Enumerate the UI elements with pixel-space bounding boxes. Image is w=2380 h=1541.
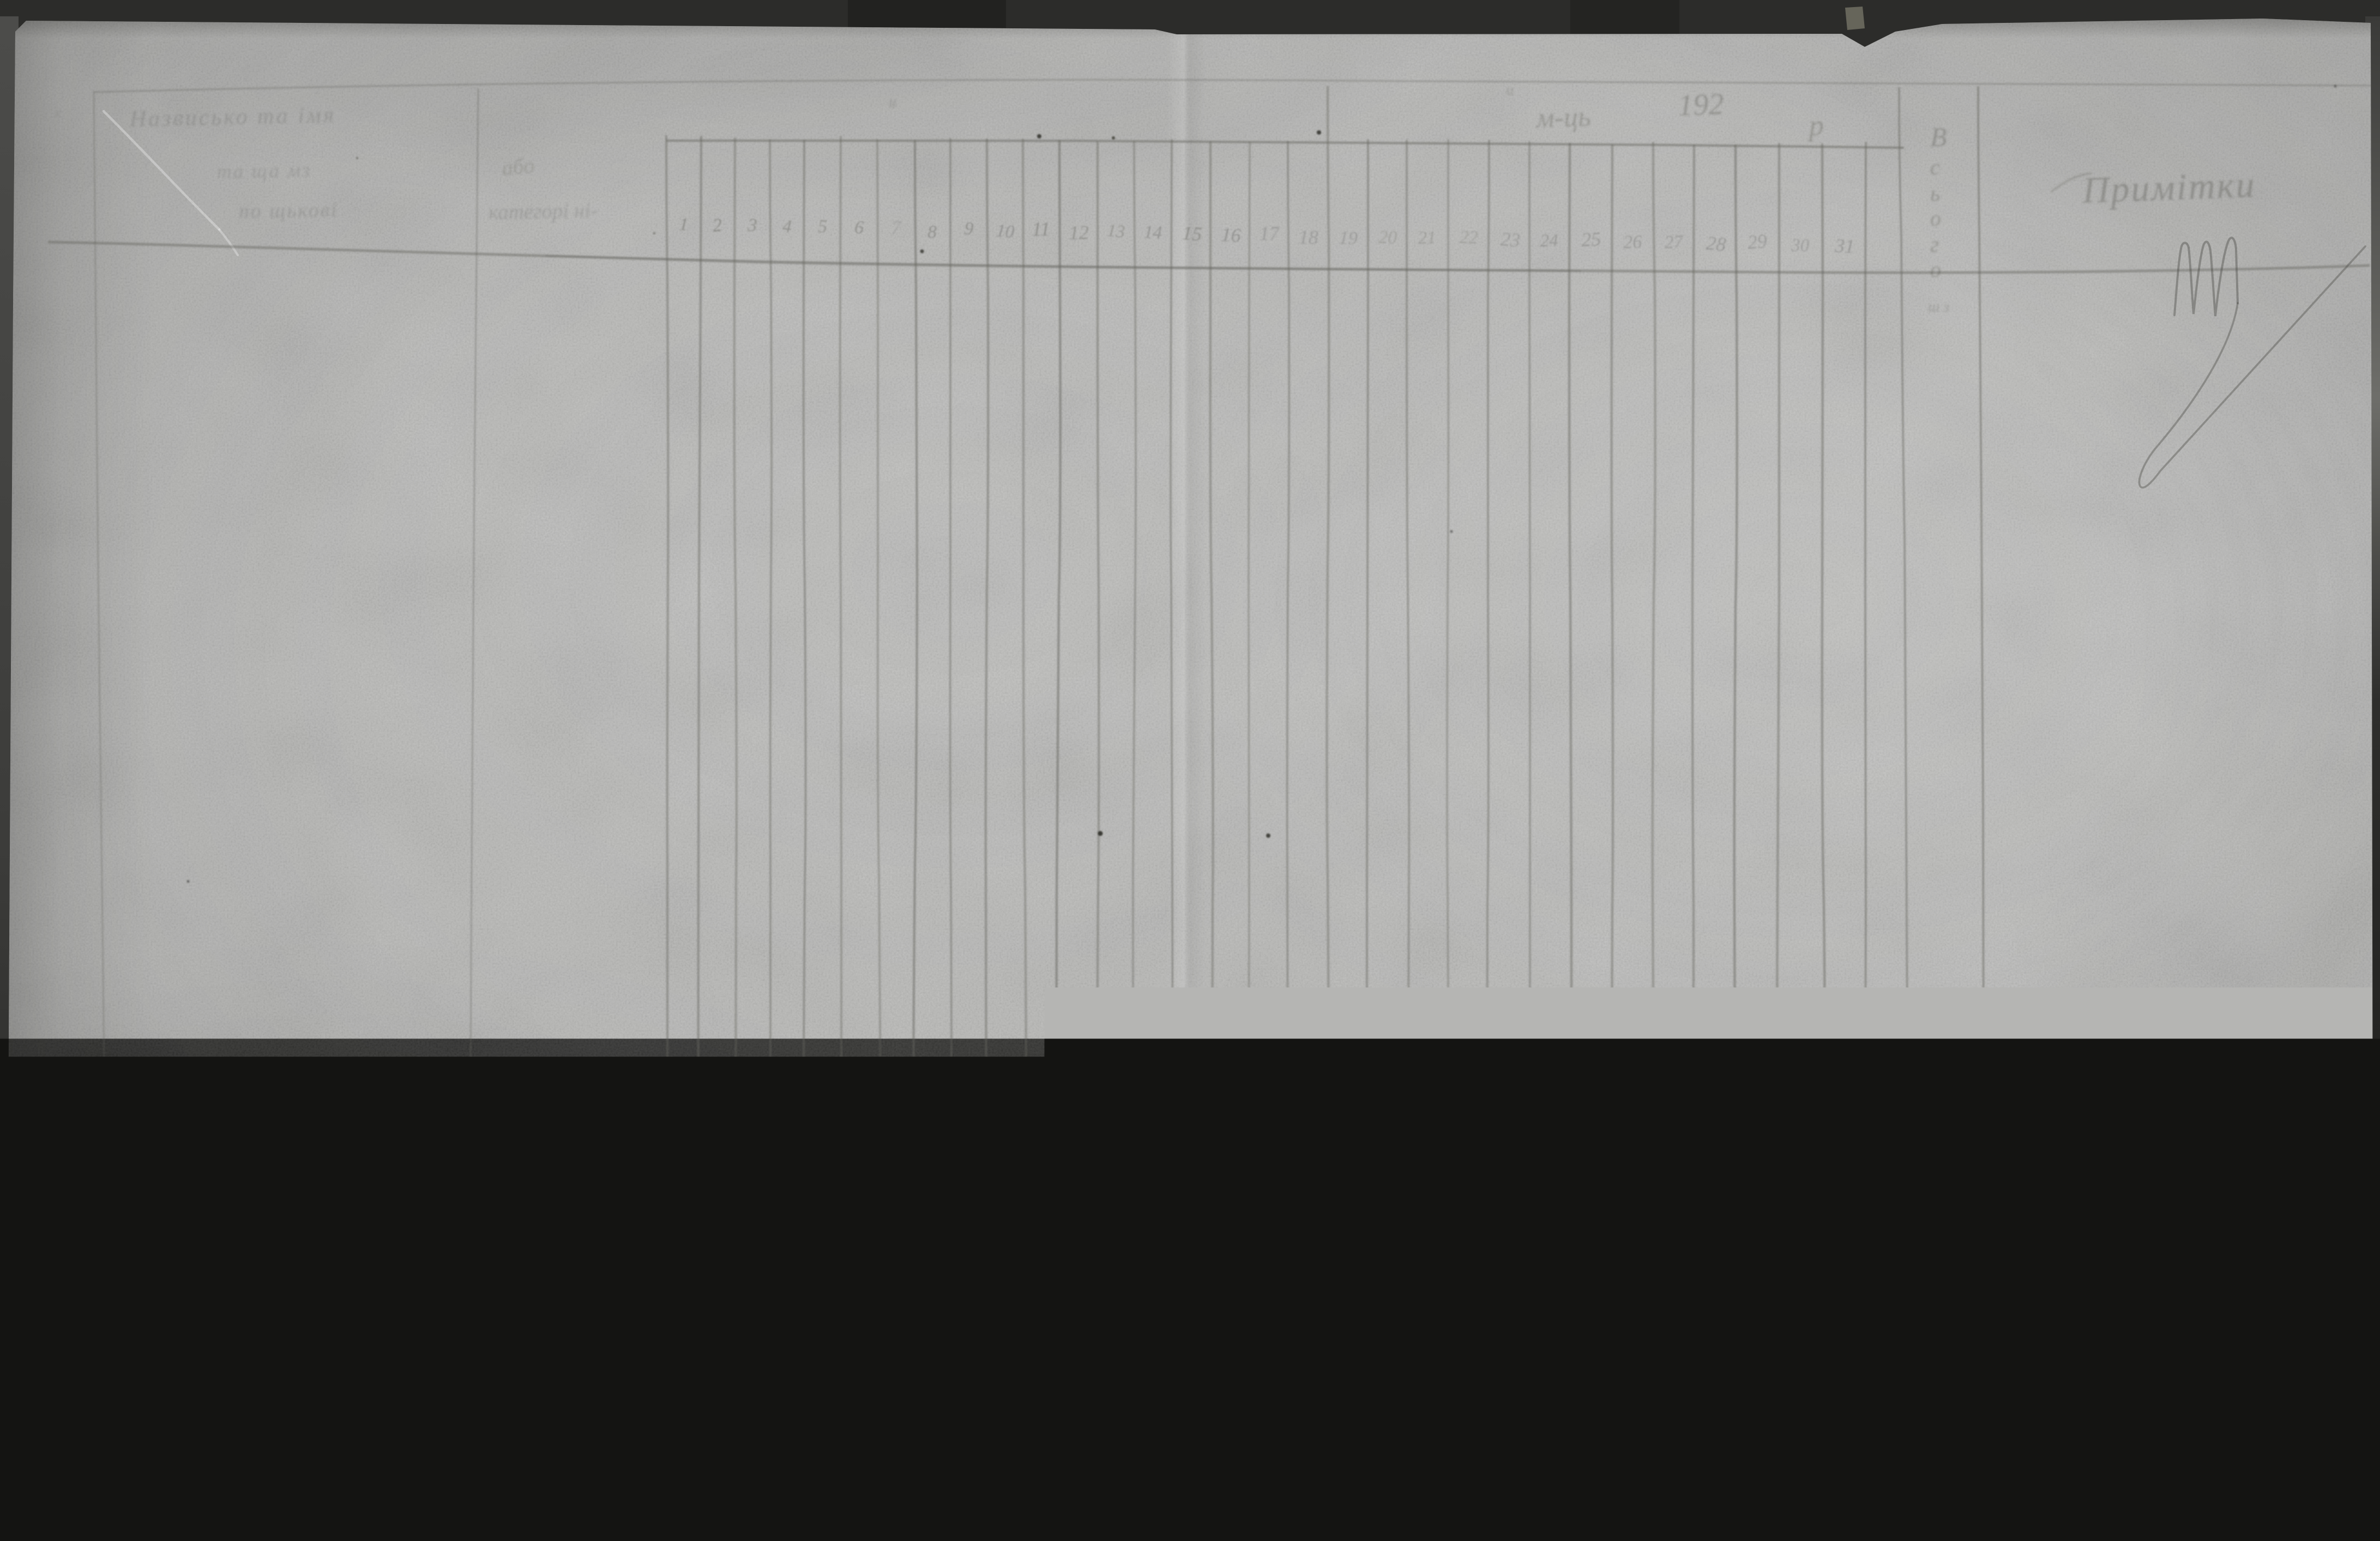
svg-text:25: 25 [1581, 228, 1601, 251]
svg-text:Бухгалтер: Бухгалтер [1548, 1381, 1779, 1422]
svg-text:або: або [501, 153, 535, 180]
svg-text:5: 5 [817, 216, 827, 237]
svg-text:17: 17 [1260, 222, 1281, 245]
svg-text:3: 3 [746, 215, 758, 235]
svg-text:/або установлено/: /або установлено/ [915, 1343, 1248, 1378]
svg-text:о: о [1930, 206, 1941, 231]
svg-text:и: и [889, 94, 896, 111]
svg-text:по щькові: по щькові [239, 198, 339, 223]
svg-text:31: 31 [1834, 234, 1855, 257]
svg-text:и: и [1506, 82, 1514, 99]
svg-text:11: 11 [1032, 218, 1050, 240]
svg-text:14: 14 [1143, 222, 1162, 243]
svg-text:24: 24 [1540, 231, 1558, 251]
svg-text:13: 13 [1106, 221, 1126, 242]
svg-text:10: 10 [995, 221, 1015, 242]
svg-text:26: 26 [1623, 232, 1642, 252]
svg-text:23: 23 [1499, 228, 1521, 251]
svg-text:м. п.: м. п. [353, 1268, 409, 1303]
svg-text:/підпис/: /підпис/ [1690, 1292, 1909, 1343]
svg-text:Рахівництвом: Рахівництвом [1558, 1419, 1807, 1454]
svg-text:категорі ні-: категорі ні- [488, 199, 598, 224]
svg-text:29: 29 [1746, 230, 1768, 253]
svg-text:с: с [1930, 155, 1940, 179]
svg-text:21: 21 [1418, 228, 1436, 248]
svg-text:8: 8 [927, 222, 937, 242]
svg-text:м-ць: м-ць [1534, 101, 1591, 135]
svg-text:В: В [1930, 122, 1947, 152]
svg-text:192 року.: 192 року. [509, 1425, 641, 1469]
svg-text:192: 192 [1677, 87, 1724, 123]
svg-text:22: 22 [1459, 227, 1478, 248]
svg-text:30: 30 [1791, 235, 1810, 256]
svg-text:19: 19 [1339, 228, 1358, 249]
svg-text:Примітки: Примітки [2081, 164, 2257, 211]
svg-text:15: 15 [1182, 222, 1203, 245]
svg-text:12: 12 [1069, 221, 1089, 244]
svg-text:1: 1 [679, 215, 689, 235]
svg-text:6: 6 [854, 217, 865, 238]
svg-text:/підписе: /підписе [1883, 1399, 2115, 1447]
svg-text:28: 28 [1705, 232, 1727, 256]
svg-text:27: 27 [1664, 232, 1684, 253]
svg-text:18: 18 [1299, 226, 1319, 249]
svg-text:р: р [1807, 109, 1824, 142]
svg-text:16: 16 [1221, 223, 1242, 246]
svg-text:ш з: ш з [1928, 299, 1949, 316]
svg-text:20: 20 [1378, 227, 1397, 248]
svg-text:4: 4 [782, 217, 792, 237]
svg-text:ь: ь [1930, 181, 1940, 206]
svg-text:х: х [54, 105, 61, 120]
svg-text:о: о [1930, 257, 1941, 282]
svg-text:Назвисько та імя: Назвисько та імя [129, 102, 336, 132]
svg-text:г: г [1930, 232, 1939, 257]
svg-text:та ща мз: та ща мз [216, 159, 311, 183]
svg-text:7: 7 [891, 217, 902, 239]
